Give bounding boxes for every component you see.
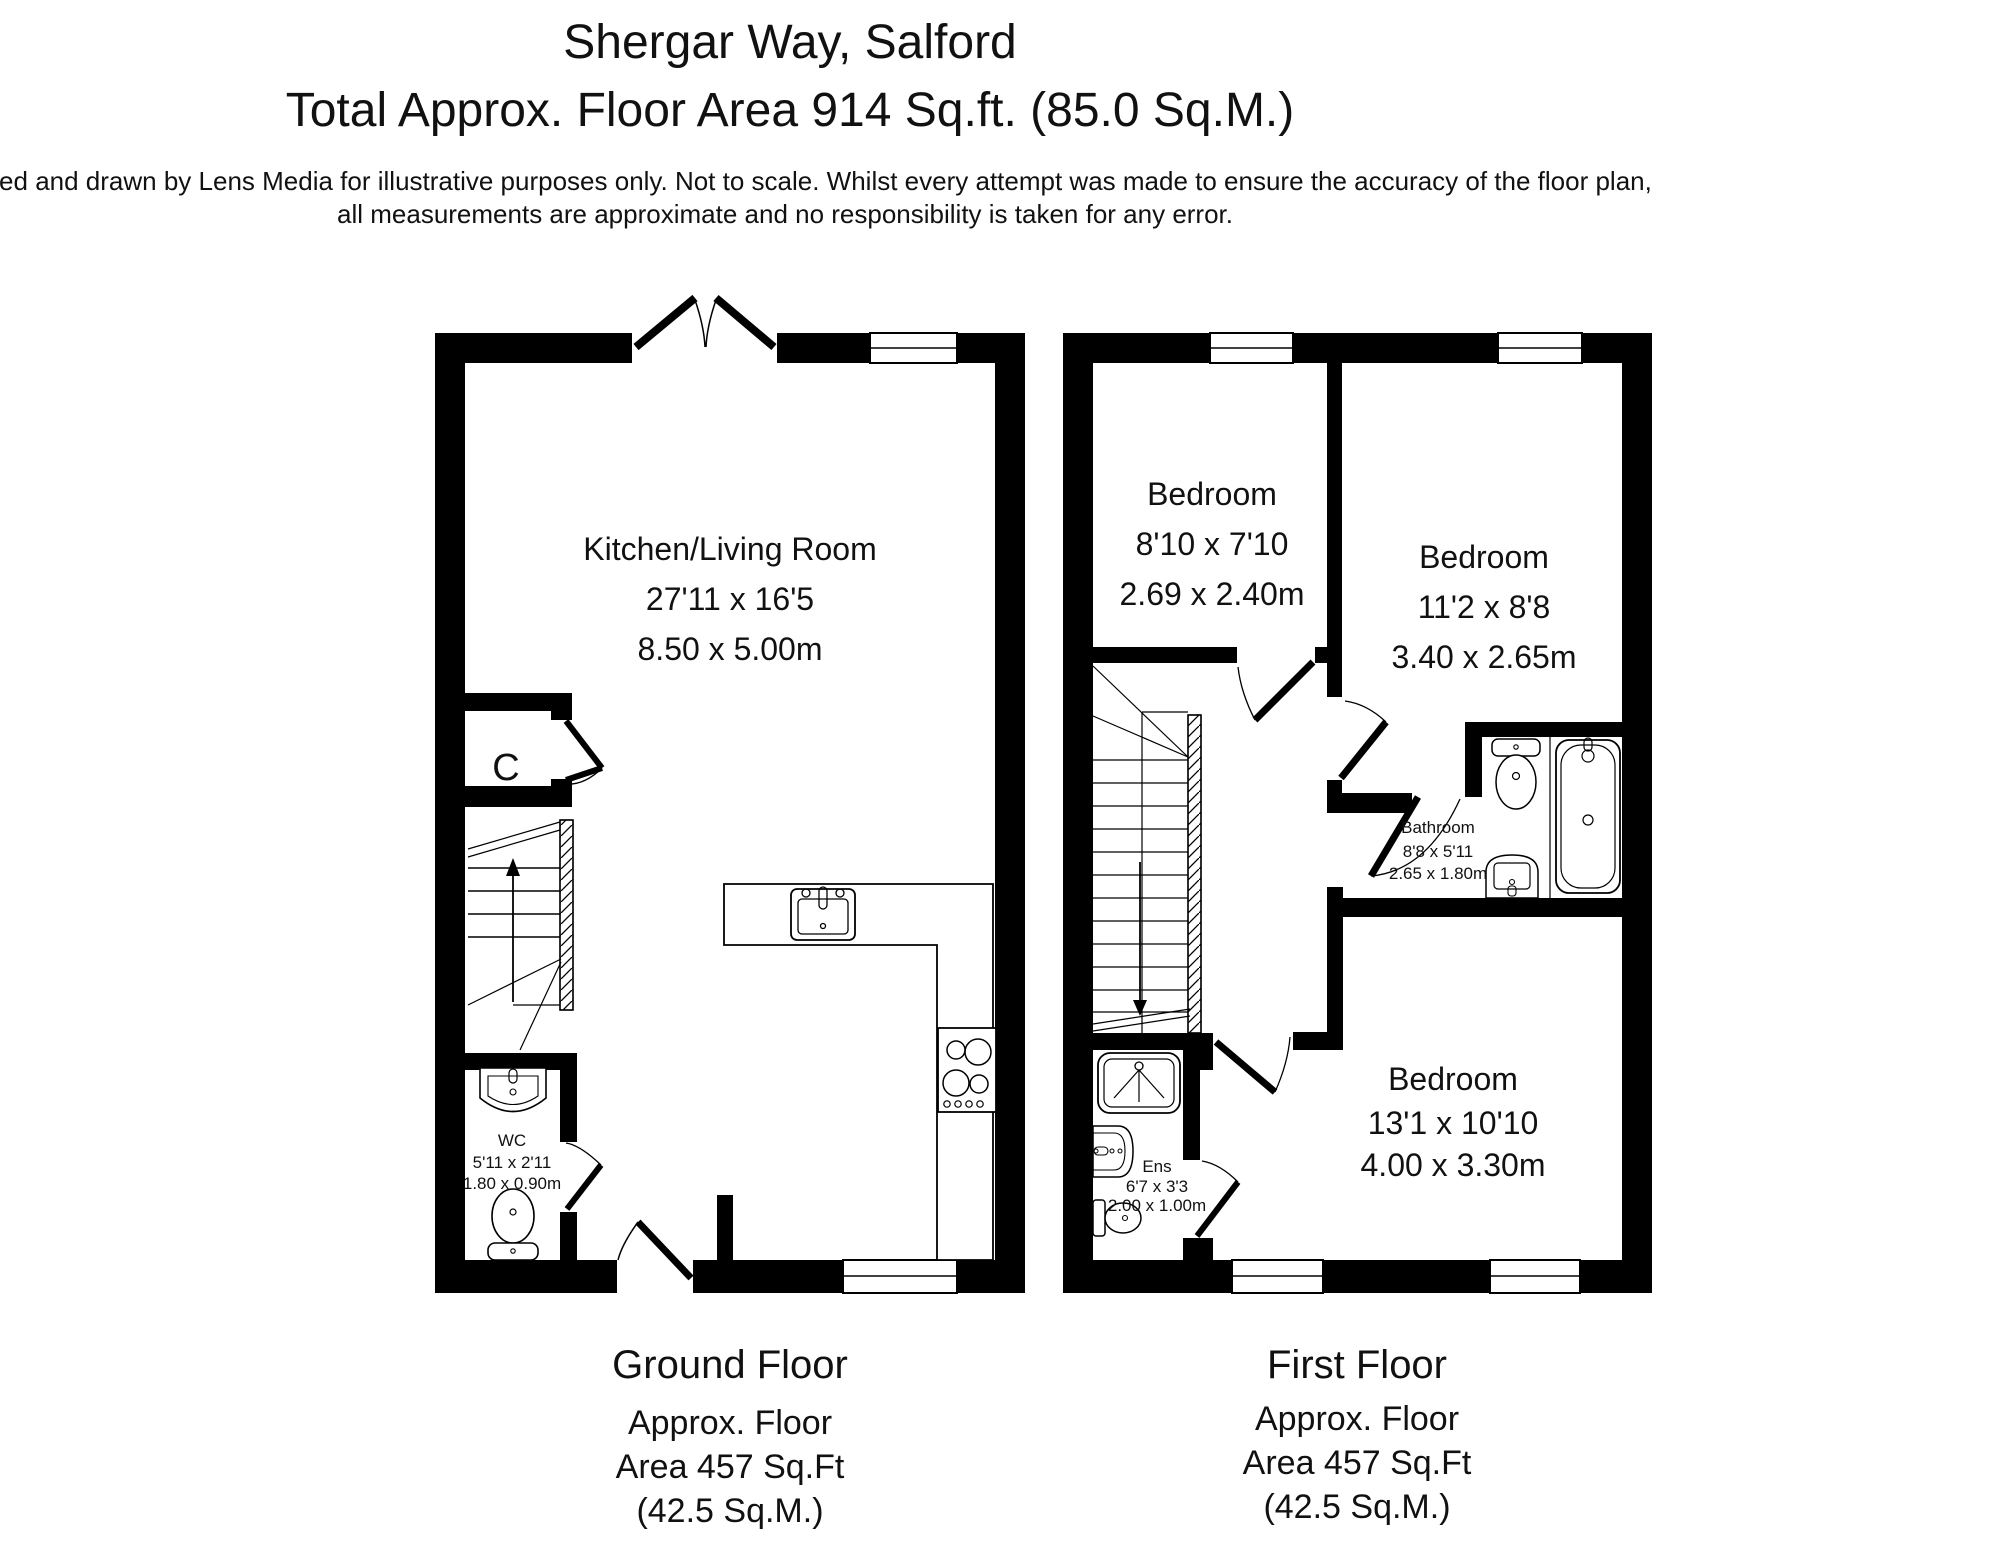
floorplan-drawing: Shergar Way, Salford Total Approx. Floor… (0, 0, 2000, 1558)
wall (435, 333, 632, 363)
window-icon (1210, 333, 1293, 363)
kitchen-room-metric: 8.50 x 5.00m (638, 631, 823, 667)
wall (1183, 1070, 1200, 1160)
first-floor-plan: Bedroom 8'10 x 7'10 2.69 x 2.40m Bedroom… (1063, 333, 1652, 1293)
wall (1063, 333, 1093, 1293)
window-icon (843, 1260, 957, 1293)
bedroom1-door-icon (1238, 662, 1313, 720)
bedroom3-room-name: Bedroom (1388, 1061, 1518, 1097)
wash-basin-icon (480, 1068, 546, 1112)
wall (1342, 793, 1412, 813)
disclaimer-line2: all measurements are approximate and no … (337, 199, 1233, 229)
bedroom3-room-imperial: 13'1 x 10'10 (1368, 1105, 1539, 1141)
first-floor-area-line1: Approx. Floor (1255, 1400, 1459, 1438)
window-icon (1232, 1260, 1323, 1293)
toilet-icon (488, 1189, 538, 1260)
ground-floor-title: Ground Floor (612, 1343, 848, 1387)
wall (957, 1260, 1025, 1293)
wall (1063, 1260, 1232, 1293)
stairs-up-icon (468, 820, 573, 1050)
ground-floor-area-line2: Area 457 Sq.Ft (616, 1448, 845, 1486)
first-floor-area-line3: (42.5 Sq.M.) (1263, 1488, 1450, 1526)
window-icon (1498, 333, 1582, 363)
ground-floor-plan: Kitchen/Living Room 27'11 x 16'5 8.50 x … (435, 298, 1025, 1293)
bedroom3-room-metric: 4.00 x 3.30m (1361, 1147, 1546, 1183)
first-floor-title: First Floor (1267, 1343, 1447, 1387)
bedroom1-room-imperial: 8'10 x 7'10 (1136, 526, 1289, 562)
wall (1327, 780, 1342, 813)
first-floor-area-line2: Area 457 Sq.Ft (1243, 1444, 1472, 1482)
bedroom2-door-icon (1341, 701, 1386, 778)
bathroom-room-imperial: 8'8 x 5'11 (1403, 842, 1473, 861)
wall (693, 1260, 843, 1293)
kitchen-room-imperial: 27'11 x 16'5 (646, 581, 814, 617)
wall (1093, 647, 1237, 663)
bedroom1-room-name: Bedroom (1147, 476, 1277, 512)
wall (560, 1212, 577, 1260)
wc-room-name: WC (498, 1131, 526, 1150)
wall (1465, 722, 1622, 737)
ensuite-room-name: Ens (1142, 1157, 1171, 1176)
stairs-down-icon (1093, 666, 1201, 1033)
wall (1063, 333, 1210, 363)
page-subtitle: Total Approx. Floor Area 914 Sq.ft. (85.… (286, 84, 1295, 137)
wall (717, 1195, 733, 1260)
window-icon (1490, 1260, 1580, 1293)
wall (1323, 1260, 1490, 1293)
wall (1327, 363, 1342, 697)
shower-icon (1098, 1053, 1180, 1113)
wall (1293, 1032, 1343, 1050)
hob-icon (938, 1028, 996, 1112)
header: Shergar Way, Salford Total Approx. Floor… (0, 16, 1652, 229)
wall (1183, 1238, 1213, 1260)
wall (1622, 333, 1652, 1293)
wall (1327, 887, 1343, 1050)
wash-basin-icon (1093, 1126, 1133, 1177)
wall (995, 333, 1025, 1293)
wc-room-imperial: 5'11 x 2'11 (473, 1153, 552, 1172)
wall (1580, 1260, 1652, 1293)
front-door-icon (618, 1222, 691, 1278)
disclaimer-line1: Surveyed and drawn by Lens Media for ill… (0, 166, 1652, 196)
kitchen-sink-icon (791, 887, 855, 940)
cupboard-label: C (492, 747, 519, 789)
wall (1343, 898, 1622, 917)
bath-icon (1556, 738, 1620, 893)
bathroom-room-name: Bathroom (1401, 818, 1475, 837)
wall (560, 1070, 577, 1142)
bedroom1-room-metric: 2.69 x 2.40m (1120, 576, 1305, 612)
wall (551, 693, 572, 720)
ensuite-room-metric: 2.00 x 1.00m (1108, 1196, 1206, 1215)
bathroom-fixtures (1486, 737, 1620, 898)
bedroom3-door-icon (1216, 1037, 1290, 1092)
wall (435, 1260, 617, 1293)
wall (1183, 1033, 1213, 1070)
kitchen-room-name: Kitchen/Living Room (583, 531, 876, 567)
wall (1465, 737, 1482, 797)
toilet-icon (1492, 739, 1540, 809)
footer: Ground Floor Approx. Floor Area 457 Sq.F… (612, 1343, 1472, 1530)
wall (435, 333, 465, 1293)
wall (777, 333, 870, 363)
ground-floor-area-line1: Approx. Floor (628, 1404, 832, 1442)
wall (551, 779, 572, 807)
french-door-icon (636, 298, 774, 347)
ground-floor-area-line3: (42.5 Sq.M.) (636, 1492, 823, 1530)
wc-door-icon (566, 1143, 601, 1209)
pedestal-basin-icon (1486, 855, 1538, 898)
window-icon (870, 333, 957, 363)
bedroom2-room-metric: 3.40 x 2.65m (1392, 639, 1577, 675)
bedroom2-room-name: Bedroom (1419, 539, 1549, 575)
bedroom2-room-imperial: 11'2 x 8'8 (1418, 589, 1551, 625)
cupboard-door-icon (564, 721, 602, 784)
bathroom-room-metric: 2.65 x 1.80m (1389, 864, 1487, 883)
wc-room-metric: 1.80 x 0.90m (463, 1174, 561, 1193)
wall (1315, 647, 1342, 663)
ground-floor-doors (564, 298, 774, 1278)
floorplan-page: Shergar Way, Salford Total Approx. Floor… (0, 0, 2000, 1558)
ensuite-room-imperial: 6'7 x 3'3 (1126, 1177, 1188, 1196)
page-title: Shergar Way, Salford (563, 16, 1017, 69)
wall (1293, 333, 1498, 363)
